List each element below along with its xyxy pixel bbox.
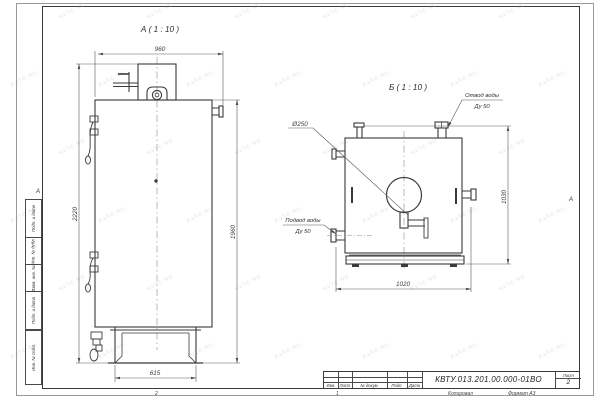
side-stamp-cell: Инв. № подл. bbox=[25, 330, 42, 385]
water-inlet-fitting bbox=[327, 229, 372, 242]
sheet-number: 2 bbox=[556, 379, 581, 388]
view-b bbox=[327, 122, 476, 270]
upper-door-handle bbox=[86, 116, 99, 164]
side-stamp-cell: Подп. и дата bbox=[25, 291, 42, 330]
rear-body bbox=[345, 138, 462, 253]
outlet-callout-line2: Ду 50 bbox=[473, 104, 490, 110]
zone-number-2: 2 bbox=[155, 391, 158, 397]
top-stub bbox=[354, 123, 364, 138]
dia-250-label: Ø250 bbox=[291, 121, 308, 128]
door-boss bbox=[154, 179, 157, 182]
side-stamp-cell: Подп. и дата bbox=[25, 199, 42, 238]
pedestal-base bbox=[108, 327, 203, 363]
drain-valve bbox=[90, 332, 102, 361]
title-block: Изм. Лист № докум. Подп. Дата КВТУ.013.2… bbox=[323, 371, 580, 389]
side-stamp-label: Инв. № подл. bbox=[31, 344, 36, 371]
dim-1030: 1030 bbox=[501, 190, 508, 205]
side-stamp-label: Взам. инв. № bbox=[31, 265, 36, 292]
dim-1020: 1020 bbox=[396, 281, 411, 288]
base-rail bbox=[346, 255, 464, 267]
inlet-callout-line1: Подвод воды bbox=[285, 218, 321, 224]
view-a-label: А ( 1 : 10 ) bbox=[140, 25, 179, 34]
damper-handle bbox=[113, 72, 138, 92]
tb-col-podp: Подп. bbox=[387, 383, 407, 388]
side-stamp-cell: Инв. № дубл. bbox=[25, 237, 42, 265]
inlet-callout-line2: Ду 50 bbox=[294, 229, 311, 235]
tb-col-docnum: № докум. bbox=[352, 383, 387, 388]
dim-1960: 1960 bbox=[230, 225, 237, 240]
dim-960: 960 bbox=[155, 46, 166, 53]
side-stamp-label: Подп. и дата bbox=[31, 205, 36, 232]
lower-door-handle bbox=[86, 252, 99, 292]
format-label: Формат А3 bbox=[508, 391, 535, 397]
dim-615: 615 bbox=[150, 370, 161, 377]
drawing-canvas: А ( 1 : 10 ) 960 2220 1960 615 bbox=[0, 0, 600, 400]
side-stamp-label: Инв. № дубл. bbox=[31, 238, 36, 264]
zone-marker-right: А bbox=[569, 197, 573, 203]
view-a bbox=[86, 57, 224, 363]
water-outlet-fitting bbox=[435, 122, 448, 138]
outlet-callout-line1: Отвод воды bbox=[465, 93, 500, 99]
tb-col-izm: Изм. bbox=[324, 383, 338, 388]
right-fitting bbox=[462, 189, 476, 200]
side-stamp-label: Подп. и дата bbox=[31, 297, 36, 324]
copied-label: Копировал bbox=[448, 391, 473, 397]
sheet-number-box: Лист 2 bbox=[555, 372, 581, 388]
tb-col-list: Лист bbox=[338, 383, 352, 388]
dim-2220: 2220 bbox=[72, 207, 79, 223]
zone-marker-left: А bbox=[36, 189, 40, 195]
document-number: КВТУ.013.201.00.000-01ВО bbox=[422, 372, 555, 388]
view-b-dimensions bbox=[283, 100, 511, 292]
side-stamp: Подп. и дата Инв. № дубл. Взам. инв. № П… bbox=[25, 200, 42, 389]
side-stamp-cell: Взам. инв. № bbox=[25, 264, 42, 292]
drawing-sheet: KVTC.RUKVTC.RUKVTC.RUKVTC.RUKVTC.RUKVTC.… bbox=[0, 0, 600, 400]
zone-number-1: 1 bbox=[336, 391, 339, 397]
view-b-label: Б ( 1 : 10 ) bbox=[389, 83, 427, 92]
boiler-body bbox=[95, 100, 212, 327]
rear-pipe-stub bbox=[212, 106, 223, 117]
sheet-label: Лист bbox=[556, 372, 581, 379]
tb-col-data: Дата bbox=[407, 383, 422, 388]
left-stub bbox=[332, 149, 345, 159]
